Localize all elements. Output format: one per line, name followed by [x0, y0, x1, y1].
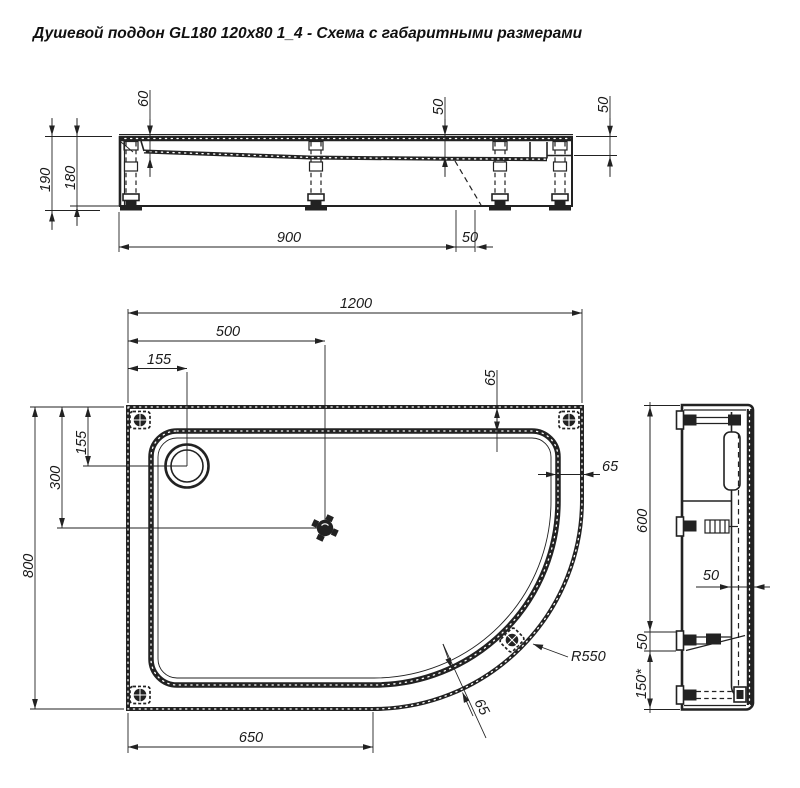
front-leg-3 [489, 142, 511, 211]
dim-depth-800: 800 [21, 407, 37, 709]
front-elevation-view: 190 180 60 50 [38, 90, 617, 252]
drain-pipe-hidden-line [455, 161, 481, 205]
dim-label-60: 60 [136, 91, 152, 107]
dim-label-155-left: 155 [74, 430, 90, 455]
dim-label-r550: R550 [571, 649, 606, 665]
dim-label-1200: 1200 [340, 296, 372, 312]
dim-label-65-corner: 65 [470, 696, 492, 719]
front-leg-4 [549, 142, 571, 211]
dim-label-65-right: 65 [602, 459, 619, 475]
dim-label-50-chain: 50 [635, 634, 651, 650]
dim-drain-x-500: 500 [128, 324, 325, 341]
dim-width-1200: 1200 [128, 296, 582, 313]
dim-label-600: 600 [635, 509, 651, 533]
schematic-drawing: Душевой поддон GL180 120x80 1_4 - Схема … [0, 0, 800, 788]
dim-corner-radius-r550: R550 [533, 644, 606, 665]
dim-label-900: 900 [277, 230, 301, 246]
foot-symbol-top-left [130, 412, 150, 429]
dim-label-50-side: 50 [703, 568, 719, 584]
dim-label-50-mid: 50 [431, 99, 447, 115]
dim-label-150: 150* [634, 668, 650, 699]
dim-side-chain: 600 50 150* [634, 402, 680, 713]
plan-view: 1200 500 155 65 65 155 [21, 296, 619, 753]
foot-symbol-top-right [559, 412, 579, 429]
dim-label-155-top: 155 [147, 352, 172, 368]
dim-body-height-180: 180 [63, 118, 119, 226]
front-leg-1 [120, 142, 142, 211]
dim-label-65-top: 65 [483, 369, 499, 386]
dim-feet-offset-50: 50 [456, 210, 493, 252]
dim-label-180: 180 [63, 166, 79, 190]
side-elevation-view: 50 600 50 150* [634, 402, 770, 713]
side-body-outline [682, 405, 753, 710]
schematic-svg: Душевой поддон GL180 120x80 1_4 - Схема … [0, 0, 800, 788]
dim-label-650: 650 [239, 730, 263, 746]
dim-feet-span-900: 900 [119, 210, 456, 252]
foot-symbol-bottom-left [130, 687, 150, 704]
dim-label-300: 300 [48, 466, 64, 490]
dim-label-800: 800 [21, 554, 37, 578]
drain-sump-profile [724, 432, 740, 490]
dim-drain-y-300: 300 [48, 407, 64, 528]
dim-label-500: 500 [216, 324, 240, 340]
dim-bottom-650: 650 [128, 712, 373, 753]
dim-basin-depth-60: 60 [136, 90, 152, 177]
drawing-title: Душевой поддон GL180 120x80 1_4 - Схема … [31, 25, 583, 42]
dim-label-190: 190 [38, 168, 54, 192]
dim-rim-drop-right-50: 50 [574, 96, 617, 177]
front-leg-2 [305, 142, 327, 211]
dim-label-50-bottom: 50 [462, 230, 478, 246]
dim-circle-x-155: 155 [128, 352, 187, 369]
dim-circle-y-155: 155 [74, 407, 90, 466]
dim-label-50-right: 50 [596, 97, 612, 113]
